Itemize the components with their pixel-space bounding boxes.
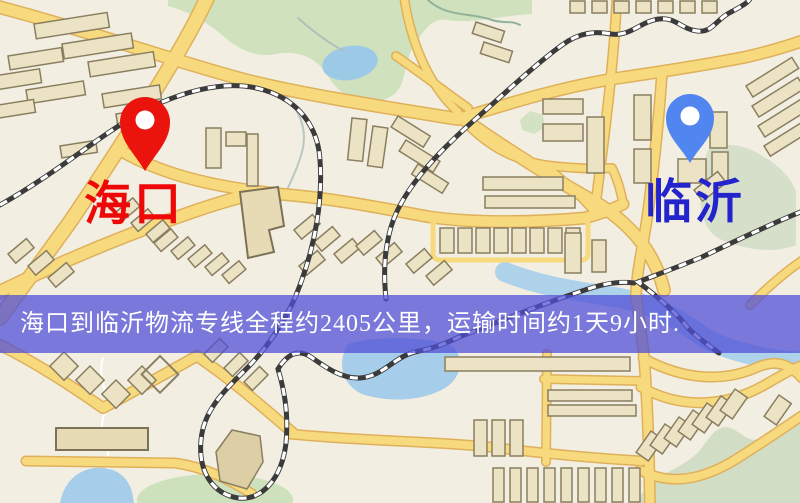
destination-pin-hole: [681, 107, 700, 126]
route-map-image: 海口 临沂 海口到临沂物流专线全程约2405公里，运输时间约1天9小时.: [0, 0, 800, 503]
destination-pin-icon: [666, 94, 714, 163]
map-canvas: 海口 临沂: [0, 0, 800, 503]
destination-city-label: 临沂: [645, 177, 745, 229]
origin-city-label: 海口: [84, 179, 184, 231]
origin-pin-hole: [136, 111, 155, 130]
route-info-banner: 海口到临沂物流专线全程约2405公里，运输时间约1天9小时.: [0, 295, 800, 353]
